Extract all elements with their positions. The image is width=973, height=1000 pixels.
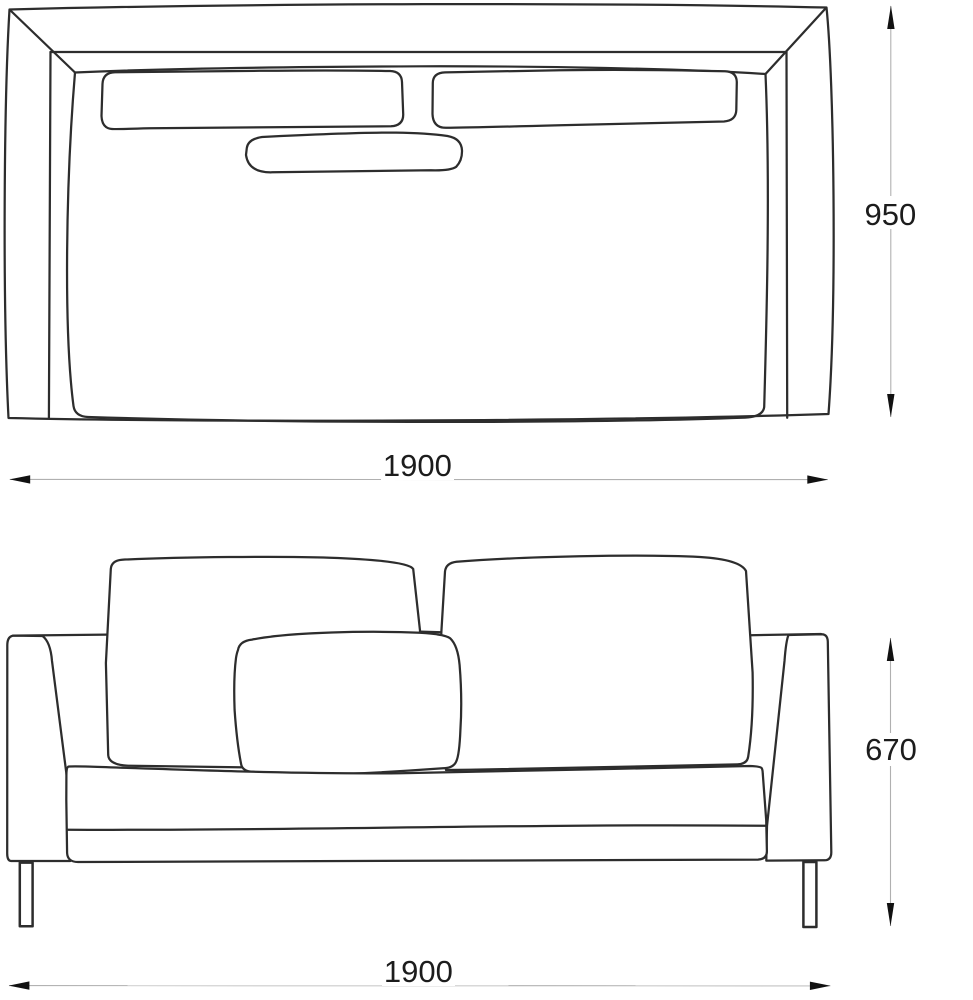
svg-text:670: 670 bbox=[865, 732, 917, 767]
svg-text:950: 950 bbox=[865, 197, 917, 232]
svg-text:1900: 1900 bbox=[384, 954, 453, 989]
svg-text:1900: 1900 bbox=[383, 448, 452, 483]
